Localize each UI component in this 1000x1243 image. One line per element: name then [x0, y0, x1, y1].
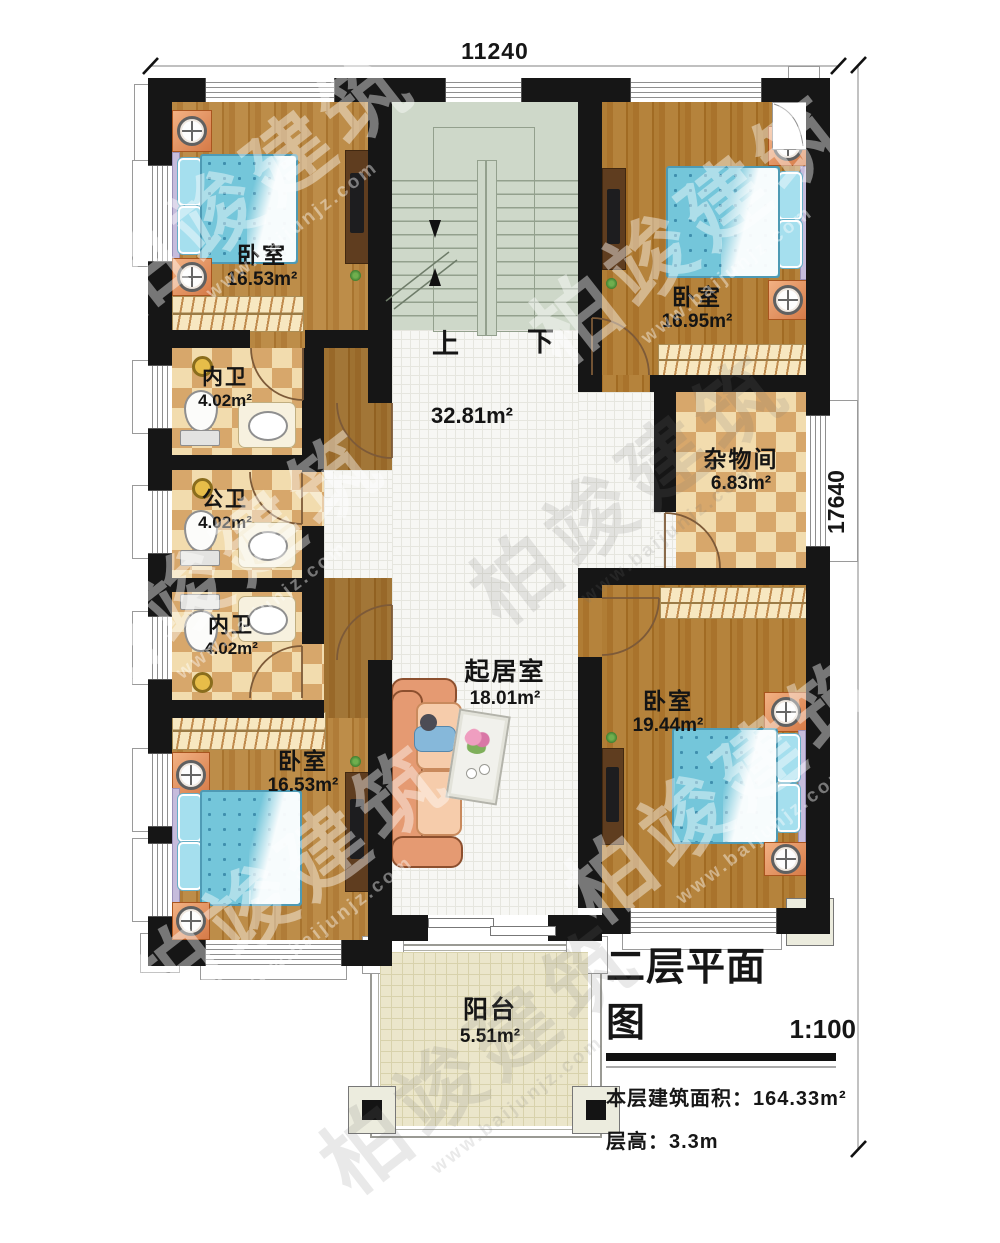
- room-area: 32.81m²: [407, 403, 537, 429]
- room-name: 卧室: [598, 688, 738, 715]
- lamp-icon: [771, 697, 801, 727]
- dimension-height: 17640: [823, 452, 849, 552]
- room-area: 16.53m²: [233, 775, 373, 797]
- window: [630, 78, 762, 102]
- nightstand: [764, 842, 808, 876]
- wall-segment: [368, 348, 392, 403]
- monitor-icon: [606, 767, 619, 822]
- lamp-icon: [176, 906, 206, 936]
- desk: [602, 748, 624, 845]
- sofa-armrest: [391, 836, 463, 868]
- wall-segment: [650, 375, 830, 392]
- bed-pillow: [776, 734, 800, 782]
- nightstand: [172, 110, 212, 152]
- desk: [345, 150, 370, 264]
- wall-segment: [654, 392, 676, 512]
- room-label-balcony: 阳台 5.51m²: [420, 996, 560, 1048]
- wall-segment: [368, 78, 392, 348]
- monitor-icon: [350, 799, 364, 859]
- wall-segment: [148, 455, 324, 470]
- doorway: [654, 512, 676, 568]
- room-name: 卧室: [192, 242, 332, 269]
- room-area: 16.95m²: [627, 311, 767, 333]
- wall-segment: [578, 375, 592, 392]
- room-name: 公卫: [160, 488, 290, 513]
- wall-segment: [148, 700, 324, 718]
- bed-mattress: [672, 728, 778, 844]
- room-label-bedroom-bl: 卧室 16.53m²: [233, 748, 373, 798]
- window: [445, 78, 522, 102]
- room-area: 6.83m²: [676, 473, 806, 495]
- window: [148, 753, 172, 827]
- room-label-bath-bottom: 内卫 4.02m²: [166, 614, 296, 659]
- wall-segment: [148, 330, 250, 348]
- window: [205, 78, 335, 102]
- room-area: 18.01m²: [435, 688, 575, 710]
- room-name: 内卫: [166, 614, 296, 639]
- wall-segment: [148, 578, 324, 592]
- room-name: 卧室: [627, 284, 767, 311]
- hall-east-arm-floor: [578, 392, 654, 568]
- toilet-tank: [180, 550, 220, 566]
- window: [148, 165, 172, 262]
- wardrobe: [658, 344, 808, 376]
- floor-plan-canvas: 上 下: [0, 0, 1000, 1188]
- stairs-up-label: 上: [432, 322, 459, 361]
- title-underline-thin: [606, 1066, 836, 1068]
- doorway: [578, 598, 602, 657]
- title-block: 二层平面图 1:100 本层建筑面积：164.33m² 层高：3.3m: [606, 936, 856, 1154]
- bed-pillow: [178, 794, 202, 842]
- wall-segment: [578, 78, 602, 392]
- sliding-door-panel: [428, 918, 494, 928]
- monitor-icon: [607, 189, 620, 244]
- room-name: 杂物间: [676, 446, 806, 473]
- wall-segment: [578, 568, 602, 598]
- wall-segment: [302, 526, 324, 644]
- room-name: 卧室: [233, 748, 373, 775]
- bed-pillow: [778, 220, 802, 268]
- bed-pillow: [778, 172, 802, 220]
- hall-west-arm-floor: [324, 470, 392, 578]
- doorway: [302, 644, 324, 700]
- bed-blanket: [249, 792, 300, 904]
- stair-stringer: [477, 160, 497, 336]
- window-sill: [200, 964, 347, 980]
- sink-basin: [248, 411, 288, 441]
- window: [630, 908, 777, 934]
- room-label-bath-top: 内卫 4.02m²: [160, 366, 290, 411]
- room-label-storage: 杂物间 6.83m²: [676, 446, 806, 496]
- room-area: 19.44m²: [598, 715, 738, 737]
- wall-segment: [302, 348, 324, 472]
- room-label-bedroom-tr: 卧室 16.95m²: [627, 284, 767, 334]
- toilet-tank: [180, 430, 220, 446]
- nightstand: [764, 692, 808, 732]
- room-area: 4.02m²: [160, 513, 290, 533]
- balcony-column: [348, 1086, 396, 1134]
- hall-area-label: 32.81m²: [407, 403, 537, 429]
- plant-icon: [606, 278, 617, 289]
- monitor-icon: [350, 173, 364, 233]
- lamp-icon: [176, 760, 206, 790]
- plan-scale: 1:100: [790, 1014, 857, 1048]
- dimension-width: 11240: [435, 38, 555, 65]
- floor-height-line: 层高：3.3m: [606, 1125, 856, 1154]
- bed-pillow: [178, 842, 202, 890]
- bed-pillow: [178, 158, 202, 206]
- sink-basin: [248, 531, 288, 561]
- nightstand: [768, 280, 808, 320]
- room-name: 内卫: [160, 366, 290, 391]
- wall-segment: [548, 915, 602, 941]
- desk: [602, 168, 626, 270]
- plan-title: 二层平面图: [606, 936, 782, 1048]
- toilet-tank: [180, 594, 220, 610]
- wardrobe: [660, 587, 808, 619]
- ceiling-lamp-icon: [192, 672, 213, 693]
- person-head: [420, 714, 437, 731]
- cup-icon: [479, 764, 490, 775]
- room-name: 阳台: [420, 996, 560, 1026]
- doorway: [250, 330, 305, 348]
- room-area: 4.02m²: [160, 391, 290, 411]
- cup-icon: [466, 768, 477, 779]
- doorway: [302, 472, 324, 526]
- room-label-bedroom-tl: 卧室 16.53m²: [192, 242, 332, 292]
- bed-blanket: [721, 168, 778, 276]
- wall-segment: [368, 660, 392, 718]
- room-area: 4.02m²: [166, 639, 296, 659]
- title-underline: [606, 1053, 836, 1061]
- wall-segment: [305, 330, 368, 348]
- room-label-bedroom-br: 卧室 19.44m²: [598, 688, 738, 738]
- flowers-icon: [464, 728, 490, 754]
- corner-shelf: [772, 102, 808, 150]
- lamp-icon: [773, 285, 803, 315]
- stairs-down-label: 下: [527, 320, 554, 359]
- bed-pillow: [776, 784, 800, 832]
- lamp-icon: [177, 116, 207, 146]
- bed-mattress: [666, 166, 780, 278]
- bed-mattress: [200, 790, 302, 906]
- window: [205, 940, 342, 966]
- wall-segment: [368, 915, 428, 941]
- person: [414, 726, 456, 752]
- wardrobe: [172, 296, 304, 332]
- nightstand: [172, 902, 210, 940]
- window: [148, 843, 172, 917]
- wall-segment: [602, 568, 830, 585]
- room-label-living: 起居室 18.01m²: [435, 658, 575, 710]
- sliding-door-panel: [490, 926, 556, 936]
- title-row: 二层平面图 1:100: [606, 936, 856, 1048]
- room-name: 起居室: [435, 658, 575, 688]
- plant-icon: [350, 270, 361, 281]
- room-area: 5.51m²: [420, 1026, 560, 1048]
- bed-blanket: [723, 730, 776, 842]
- lamp-icon: [771, 844, 801, 874]
- floor-area-line: 本层建筑面积：164.33m²: [606, 1082, 856, 1111]
- room-area: 16.53m²: [192, 269, 332, 291]
- room-label-bath-mid: 公卫 4.02m²: [160, 488, 290, 533]
